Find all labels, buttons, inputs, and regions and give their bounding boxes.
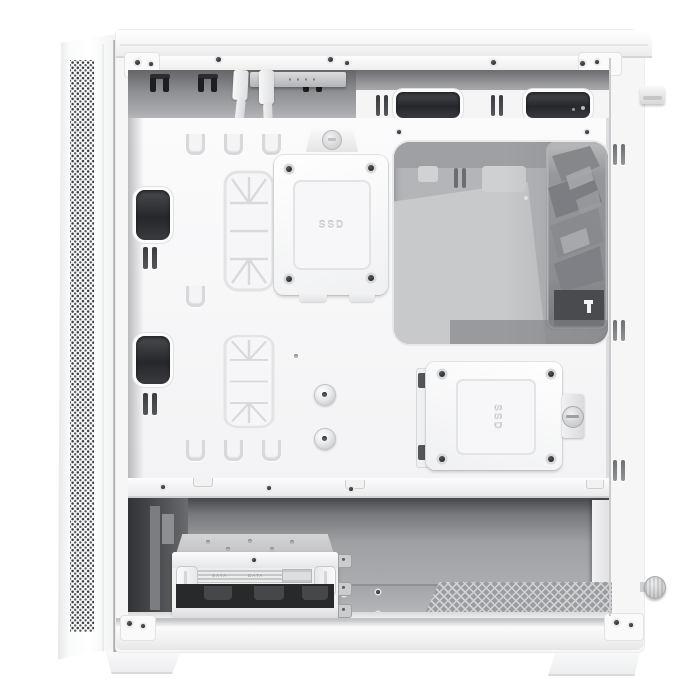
cable-clip <box>198 74 220 94</box>
hdd-drive-edge: SATA DATA <box>198 568 312 583</box>
ssd-bracket-screw <box>439 456 445 462</box>
cage-hole <box>206 540 210 544</box>
cable-tie-point <box>224 134 243 155</box>
window-bottom-shadow <box>450 320 608 344</box>
front-panel-edge-highlight <box>102 44 104 654</box>
top-cable-channel-rear <box>356 70 611 92</box>
cable-tie-slot <box>152 247 157 269</box>
latch-groove <box>643 96 662 100</box>
top-fan-cutout <box>526 92 590 118</box>
cable-cover-lower <box>221 333 277 430</box>
ssd-embossed-text: SSD <box>319 220 346 231</box>
cutout-reflection-dot <box>581 106 585 110</box>
hdd-label-sata: SATA <box>212 574 227 579</box>
cage-hole <box>270 547 274 551</box>
top-rail-screw <box>595 60 599 64</box>
ssd-bracket-tab <box>349 293 375 302</box>
front-panel-cable <box>232 70 249 101</box>
shroud-screw <box>267 486 271 490</box>
cutout-reflection-dot <box>572 108 575 111</box>
bottom-rail-screw <box>141 624 145 628</box>
cage-wall-clip <box>338 582 352 596</box>
ssd-embossed-text: SSD <box>491 404 502 431</box>
cable-cover-pattern <box>221 333 277 430</box>
rear-wall-slot <box>462 168 466 188</box>
shroud-screw <box>161 485 165 489</box>
tray-screw <box>397 130 401 134</box>
thumbscrew-slot <box>328 138 336 141</box>
top-rail-screw <box>328 57 333 62</box>
rear-rail-shadow-line <box>609 58 611 616</box>
bottom-frame-rail <box>116 618 644 650</box>
rear-wall-vent <box>418 166 438 182</box>
top-mount-slot <box>499 95 503 116</box>
top-mount-slot <box>376 95 380 116</box>
rear-rail-slot <box>621 320 625 341</box>
floor-screw <box>376 590 380 594</box>
cable-grommet <box>314 428 336 450</box>
cable-tie-point <box>186 134 205 155</box>
side-panel-latch <box>640 86 665 104</box>
cage-screw <box>252 558 256 562</box>
bay-divider <box>204 586 232 600</box>
ssd-bracket-screw <box>286 166 292 172</box>
rear-rail-slot <box>613 320 617 341</box>
shroud-notch <box>586 480 604 489</box>
top-rail-screw <box>149 62 153 66</box>
bay-divider <box>254 586 284 600</box>
cable-clip <box>150 74 172 94</box>
ssd-bracket-screw <box>439 371 445 377</box>
front-panel-cable <box>259 70 274 104</box>
rear-rail-slot <box>613 460 617 481</box>
cage-hole <box>226 547 230 551</box>
cage-wall-clip <box>338 604 352 618</box>
cable-tie-point <box>224 440 243 461</box>
cable-tie-slot <box>152 393 157 415</box>
bottom-rail-screw <box>614 620 619 625</box>
chamber-front-bracket <box>162 514 174 544</box>
tray-screw <box>585 130 589 134</box>
top-panel-groove <box>120 44 648 46</box>
top-fan-cutout <box>396 92 460 118</box>
ssd-bracket-tab <box>299 293 327 302</box>
cable-tie-point <box>186 286 205 307</box>
ssd-bracket-screw <box>286 276 292 282</box>
cable-grommet <box>314 384 336 406</box>
fan-blades <box>546 142 608 330</box>
hdd-cage-top <box>176 534 334 554</box>
top-rail-screw <box>345 61 349 65</box>
psu-vent-mesh <box>420 582 612 616</box>
bottom-right-corner-plate <box>604 613 644 641</box>
hdd-label-data: DATA <box>248 574 263 579</box>
bay-divider <box>302 586 328 600</box>
rear-exhaust-fan <box>546 142 608 330</box>
shroud-notch <box>345 480 365 489</box>
rear-rail-slot <box>613 144 617 165</box>
cable-tie-point <box>262 440 281 461</box>
bottom-rail-screw <box>629 623 633 627</box>
ssd-bracket-screw <box>548 371 554 377</box>
rear-wall-slot <box>454 168 458 188</box>
ssd-bracket-recess: SSD <box>293 180 371 270</box>
psu-bracket-thumbscrew <box>644 576 666 599</box>
rear-rail-slot <box>621 144 625 165</box>
ssd-bracket-screw <box>368 275 374 281</box>
cable-tie-slot <box>143 393 148 415</box>
ssd-bracket-screw <box>548 456 554 462</box>
cable-tie-slot <box>143 247 148 269</box>
top-rail-screw <box>135 60 140 65</box>
ssd-bracket-upper: SSD <box>274 155 388 295</box>
rear-rail-slot <box>621 460 625 481</box>
tray-left-shadow <box>128 118 144 480</box>
top-rail-screw <box>216 57 221 62</box>
cage-hole <box>248 539 252 543</box>
chamber-front-bracket <box>150 506 160 610</box>
front-cable-cutout <box>136 190 170 240</box>
front-vent-perforation <box>70 60 94 632</box>
tray-window-opening <box>394 142 608 344</box>
shroud-notch <box>193 478 213 487</box>
top-rail-screw <box>580 61 585 66</box>
bottom-left-corner-plate <box>120 615 156 641</box>
pc-case-product-photo: SSD <box>0 0 700 700</box>
bottom-rail-screw <box>127 621 132 626</box>
hdd-label-block <box>282 569 312 583</box>
front-panel <box>58 34 116 662</box>
top-mount-slot <box>384 95 388 116</box>
hdd-bay-opening <box>176 584 334 608</box>
cable-cover-upper <box>221 168 277 294</box>
cage-wall-clip <box>338 554 352 568</box>
clip-hole <box>342 608 345 611</box>
thumbscrew-slot <box>566 415 579 418</box>
top-mount-slot <box>491 95 495 116</box>
cable-tie-point <box>262 134 281 155</box>
clip-hole <box>342 586 345 589</box>
ssd-bracket-recess: SSD <box>456 379 536 455</box>
shroud-screw <box>349 487 353 491</box>
standoff-hole <box>294 354 298 358</box>
top-rail-screw <box>491 60 496 65</box>
cable-cover-pattern <box>221 168 277 294</box>
front-cable-cutout <box>136 336 170 384</box>
cable-tie-point <box>186 440 205 461</box>
clip-hole <box>342 558 345 561</box>
anchor-thumbscrew <box>322 130 342 150</box>
ssd-bracket-lower: SSD <box>426 362 562 470</box>
io-pcb-pins <box>286 78 320 81</box>
thumbscrew-knurl <box>645 577 665 598</box>
ssd-bracket-screw <box>368 165 374 171</box>
cage-hole <box>290 540 294 544</box>
ssd-latch-thumbscrew <box>562 406 584 428</box>
